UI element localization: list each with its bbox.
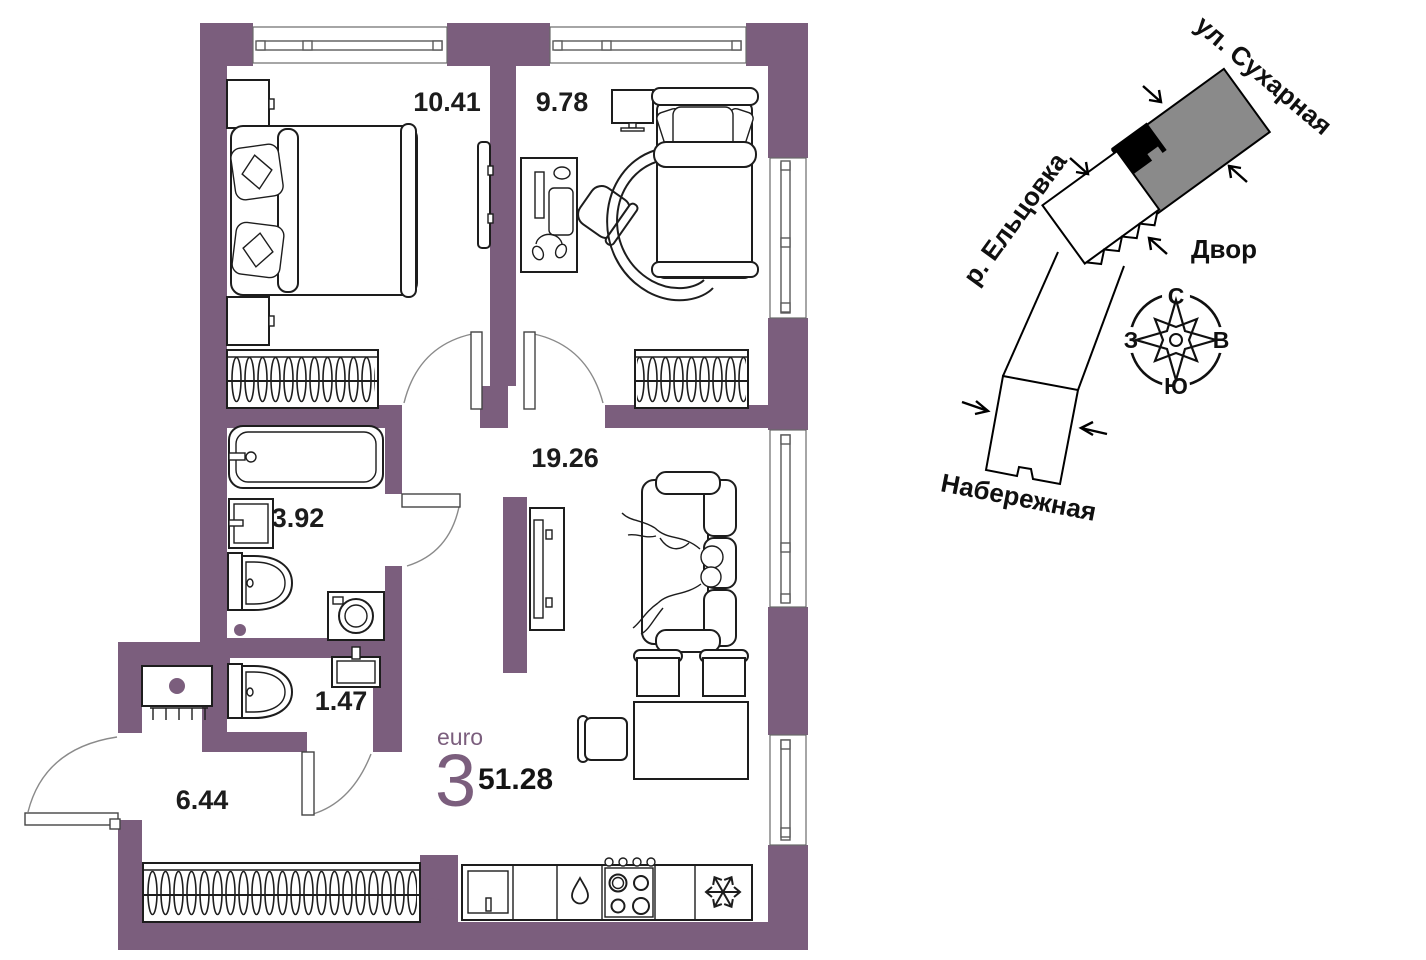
area-label-living: 19.26 (531, 443, 599, 473)
window-right-2 (770, 430, 806, 607)
double-bed (230, 124, 417, 297)
embankment-label: Набережная (939, 467, 1099, 527)
compass-south-label: Ю (1164, 373, 1188, 399)
desk (521, 158, 577, 272)
nightstand (227, 297, 274, 345)
building-connector (1003, 252, 1124, 390)
nightstand (227, 80, 274, 128)
building-section-bottom (986, 376, 1078, 484)
compass-rose-icon: С Ю З В (1118, 282, 1234, 400)
kitchen-sink-unit (468, 871, 508, 913)
wardrobe (635, 350, 748, 408)
unit-summary: euro 3 51.28 (435, 724, 553, 822)
sink (229, 499, 273, 548)
entrance-door (25, 737, 120, 829)
bathroom-drain-dot (234, 624, 246, 636)
toilet (228, 664, 292, 718)
kitchen-row (462, 858, 752, 920)
bathroom-door (402, 494, 460, 566)
bathtub (229, 426, 383, 488)
pillow (230, 143, 285, 201)
mini-map: С Ю З В ул. Сухарная р. Ельцовка Двор На… (939, 9, 1339, 527)
hall-wardrobe (143, 863, 420, 922)
window-right-1 (770, 158, 806, 318)
bedroom-2-furniture (521, 88, 758, 408)
window-bedroom-2 (550, 27, 746, 63)
arrow-icon (1149, 238, 1167, 254)
yard-label: Двор (1191, 234, 1257, 264)
dining-chair (700, 650, 748, 696)
toilet (228, 553, 292, 610)
tv-on-stand (612, 90, 653, 131)
area-label-hallway: 6.44 (176, 785, 229, 815)
unit-total-area: 51.28 (478, 763, 553, 796)
unit-rooms-count: 3 (435, 739, 476, 822)
compass-west-label: З (1124, 327, 1138, 353)
wc-door (302, 752, 371, 815)
area-label-bathroom: 3.92 (272, 503, 325, 533)
dining-chair (634, 650, 682, 696)
wall-tv (478, 142, 493, 248)
bedroom-1-furniture (227, 80, 493, 408)
washing-machine (328, 592, 384, 640)
arrow-icon (1143, 86, 1161, 102)
stool (578, 716, 627, 762)
structural-column (423, 898, 443, 918)
arrow-icon (1081, 422, 1107, 435)
area-label-bedroom-1: 10.41 (413, 87, 481, 117)
area-label-wc: 1.47 (315, 686, 368, 716)
desk-chair (572, 180, 639, 247)
compass-north-label: С (1168, 283, 1185, 309)
window-right-3 (770, 735, 806, 845)
pillow (231, 221, 285, 278)
bathroom-fixtures (228, 426, 384, 640)
dining-table (634, 702, 748, 779)
compass-east-label: В (1213, 327, 1230, 353)
arrow-icon (1229, 166, 1247, 182)
wardrobe (227, 350, 378, 408)
tv-sideboard (530, 508, 564, 630)
arrow-icon (1070, 158, 1088, 174)
floor-plan-page: 10.41 9.78 19.26 3.92 1.47 6.44 euro 3 5… (0, 0, 1426, 960)
window-bedroom-1 (253, 27, 447, 63)
utility-shaft (142, 666, 212, 720)
living-room-furniture (530, 472, 748, 779)
single-bed (652, 88, 758, 278)
area-label-bedroom-2: 9.78 (536, 87, 589, 117)
bedroom-1-door (404, 332, 482, 409)
bedroom-2-door (524, 332, 603, 409)
arrow-icon (962, 401, 988, 414)
floor-plan-drawing: 10.41 9.78 19.26 3.92 1.47 6.44 euro 3 5… (0, 0, 1426, 960)
